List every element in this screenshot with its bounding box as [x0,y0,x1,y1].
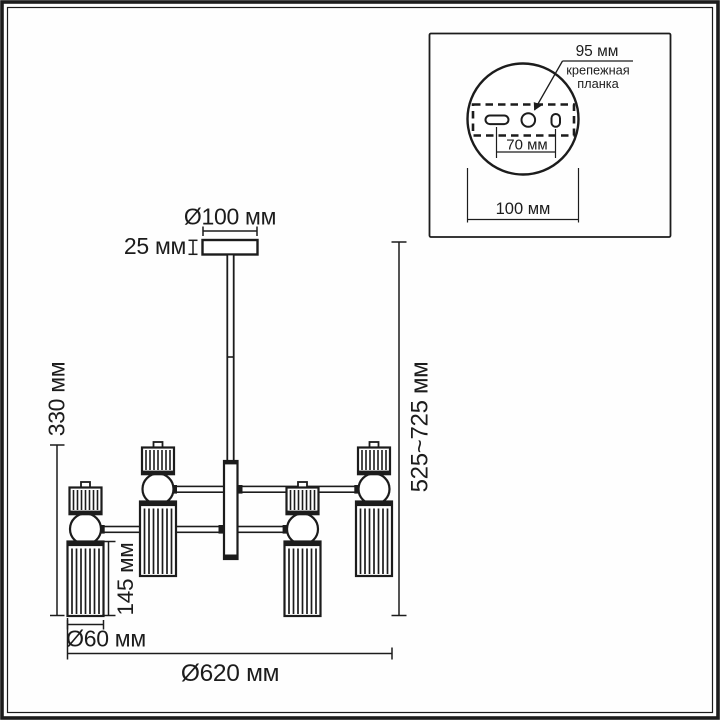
lower-shade-height-label: 145 мм [113,543,138,616]
dimension-base-width: 100 мм [468,168,579,223]
ceiling-canopy [203,240,258,255]
base-width-label: 100 мм [496,200,551,218]
overall-diameter-label: Ø620 мм [181,660,279,687]
plate-caption-line2: планка [577,76,619,91]
central-hub [223,461,238,560]
mounting-detail-inset: 95 мм крепежная планка 70 мм 100 мм [430,34,671,238]
shade-diameter-label: Ø60 мм [66,626,146,652]
lamp-unit-1 [67,482,104,616]
dimension-lower-shade-height: 145 мм [102,542,138,616]
overall-height-label: 525~725 мм [407,362,434,493]
upper-arm [158,486,374,492]
dimension-overall-height: 525~725 мм [392,242,434,616]
body-height-label: 330 мм [44,362,70,437]
lamp-unit-3 [284,482,321,616]
chandelier-dimension-drawing: Ø100 мм 25 мм 330 мм 525~725 мм 145 мм Ø… [0,0,720,720]
dimension-shade-diameter: Ø60 мм [66,620,146,652]
frame-outer [2,2,718,718]
drawing-canvas: Ø100 мм 25 мм 330 мм 525~725 мм 145 мм Ø… [0,0,720,720]
dimension-canopy-height: 25 мм [124,233,198,259]
canopy-height-label: 25 мм [124,233,186,259]
canopy-diameter-label: Ø100 мм [184,204,276,230]
canopy-base-circle [468,64,579,175]
lower-arm [86,527,303,533]
lamp-unit-4 [355,442,392,576]
hanging-rod [227,255,233,463]
dimension-body-height: 330 мм [44,362,70,616]
plate-length-label: 95 мм [576,43,619,60]
lamp-unit-2 [139,442,176,576]
dimension-canopy-diameter: Ø100 мм [184,204,276,237]
hole-spacing-label: 70 мм [506,137,547,154]
